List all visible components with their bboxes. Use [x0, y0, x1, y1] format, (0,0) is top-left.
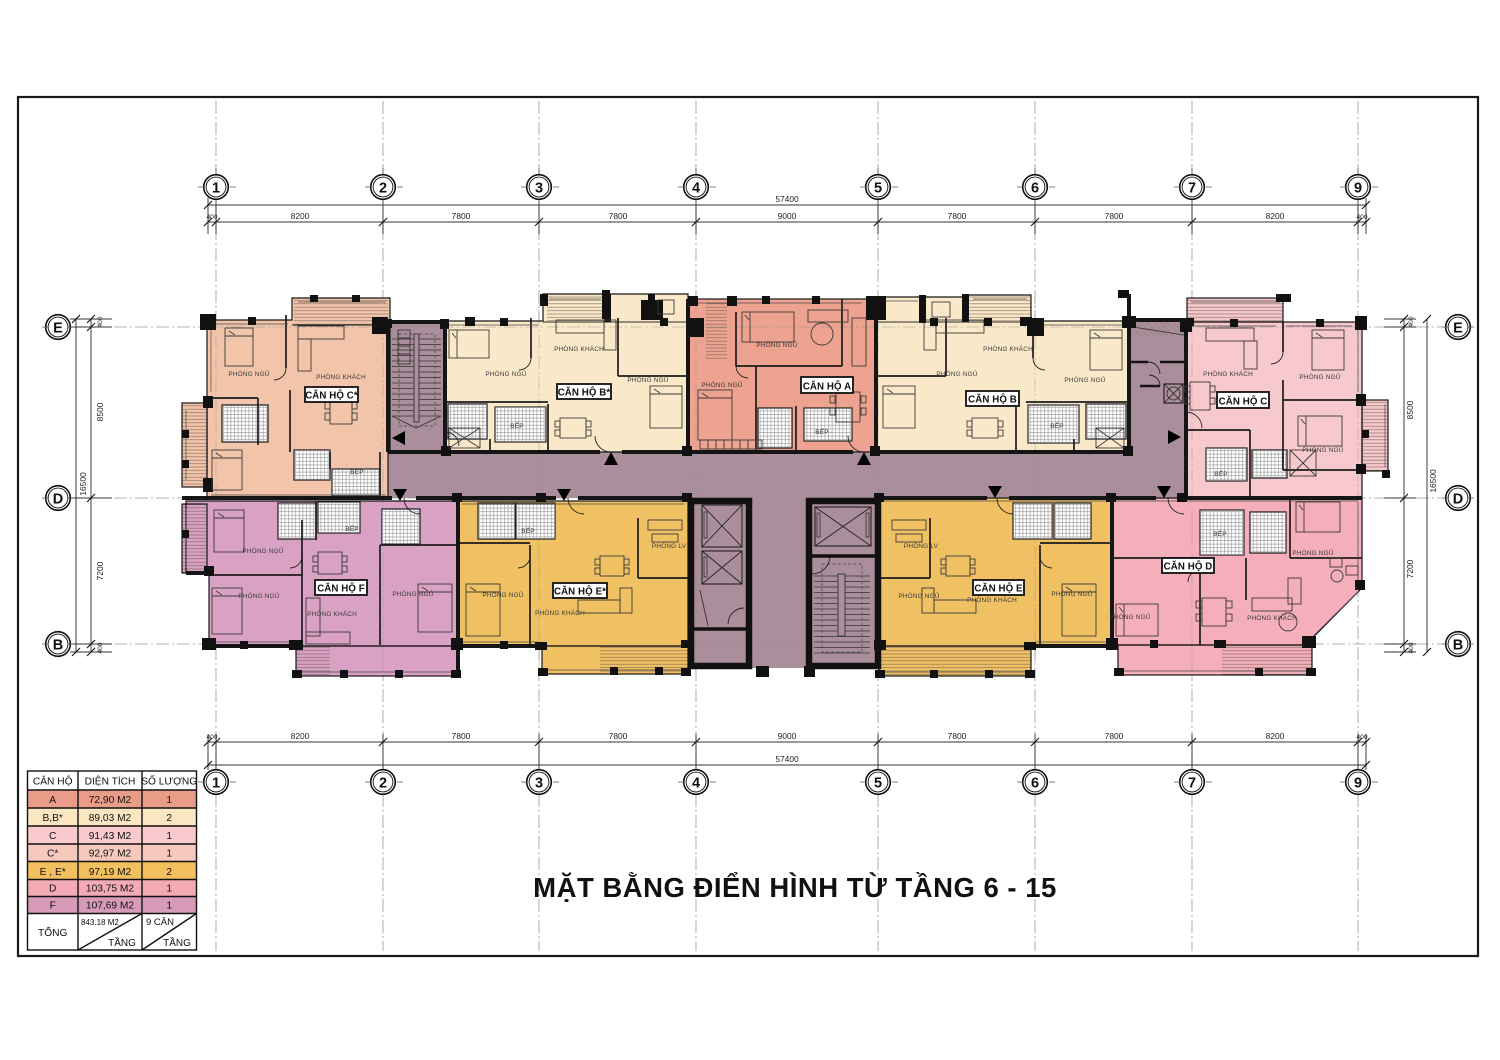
svg-text:DIỆN TÍCH: DIỆN TÍCH	[85, 775, 136, 788]
svg-text:PHÒNG KHÁCH: PHÒNG KHÁCH	[535, 608, 585, 617]
svg-text:400: 400	[97, 316, 104, 327]
svg-text:PHÒNG NGỦ: PHÒNG NGỦ	[482, 590, 523, 599]
svg-text:7: 7	[1188, 180, 1196, 196]
svg-text:CĂN HỘ E*: CĂN HỘ E*	[554, 586, 606, 598]
svg-text:C: C	[49, 831, 56, 842]
svg-text:2: 2	[166, 867, 172, 878]
svg-text:D: D	[1453, 491, 1463, 507]
svg-text:9000: 9000	[778, 731, 797, 741]
svg-text:9000: 9000	[778, 211, 797, 221]
svg-text:8200: 8200	[1266, 731, 1285, 741]
svg-text:PHÒNG KHÁCH: PHÒNG KHÁCH	[967, 595, 1017, 604]
svg-text:7800: 7800	[948, 731, 967, 741]
svg-text:97,19 M2: 97,19 M2	[89, 867, 132, 878]
svg-text:92,97 M2: 92,97 M2	[89, 849, 132, 860]
svg-text:B: B	[53, 637, 63, 653]
svg-text:400: 400	[1356, 734, 1367, 741]
svg-text:PHÒNG NGỦ: PHÒNG NGỦ	[701, 380, 742, 389]
svg-text:7800: 7800	[609, 731, 628, 741]
svg-text:SỐ LƯỢNG: SỐ LƯỢNG	[141, 774, 197, 788]
svg-text:16500: 16500	[1428, 469, 1438, 493]
svg-text:E: E	[53, 320, 63, 336]
svg-text:TẦNG: TẦNG	[108, 936, 136, 949]
svg-text:1: 1	[166, 884, 172, 895]
svg-text:400: 400	[1408, 642, 1415, 653]
svg-text:A: A	[49, 795, 56, 806]
svg-text:4: 4	[692, 775, 700, 791]
svg-text:91,43 M2: 91,43 M2	[89, 831, 132, 842]
svg-text:5: 5	[874, 180, 882, 196]
svg-text:PHÒNG LV: PHÒNG LV	[652, 541, 687, 550]
svg-text:PHÒNG NGỦ: PHÒNG NGỦ	[228, 369, 269, 378]
svg-text:103,75 M2: 103,75 M2	[86, 884, 134, 895]
svg-text:PHÒNG NGỦ: PHÒNG NGỦ	[898, 591, 939, 600]
svg-text:8200: 8200	[291, 211, 310, 221]
svg-text:400: 400	[97, 642, 104, 653]
svg-text:1: 1	[166, 831, 172, 842]
svg-text:1: 1	[166, 901, 172, 912]
svg-text:B,B*: B,B*	[43, 813, 63, 824]
svg-text:PHÒNG KHÁCH: PHÒNG KHÁCH	[1247, 613, 1297, 622]
svg-text:7200: 7200	[95, 561, 105, 580]
svg-text:2: 2	[166, 813, 172, 824]
svg-text:PHÒNG NGỦ: PHÒNG NGỦ	[1292, 548, 1333, 557]
svg-text:4: 4	[692, 180, 700, 196]
svg-text:PHÒNG NGỦ: PHÒNG NGỦ	[1109, 612, 1150, 621]
svg-text:7800: 7800	[1105, 211, 1124, 221]
svg-text:9: 9	[1354, 180, 1362, 196]
svg-text:PHÒNG NGỦ: PHÒNG NGỦ	[1051, 589, 1092, 598]
svg-text:8200: 8200	[1266, 211, 1285, 221]
svg-text:PHÒNG KHÁCH: PHÒNG KHÁCH	[307, 609, 357, 618]
svg-text:TẦNG: TẦNG	[163, 936, 191, 949]
svg-text:8500: 8500	[95, 402, 105, 421]
svg-text:400: 400	[206, 214, 217, 221]
svg-text:PHÒNG KHÁCH: PHÒNG KHÁCH	[554, 344, 604, 353]
svg-text:7: 7	[1188, 775, 1196, 791]
svg-text:PHÒNG NGỦ: PHÒNG NGỦ	[627, 375, 668, 384]
svg-text:7800: 7800	[948, 211, 967, 221]
svg-text:9 CĂN: 9 CĂN	[146, 917, 174, 928]
svg-text:8200: 8200	[291, 731, 310, 741]
svg-text:PHÒNG NGỦ: PHÒNG NGỦ	[485, 369, 526, 378]
svg-text:CĂN HỘ: CĂN HỘ	[33, 775, 73, 788]
svg-text:6: 6	[1031, 180, 1039, 196]
svg-text:1: 1	[212, 180, 220, 196]
svg-text:6: 6	[1031, 775, 1039, 791]
svg-text:CĂN HỘ F: CĂN HỘ F	[317, 583, 365, 595]
svg-text:PHÒNG KHÁCH: PHÒNG KHÁCH	[1203, 369, 1253, 378]
svg-text:57400: 57400	[775, 754, 799, 764]
svg-text:72,90 M2: 72,90 M2	[89, 795, 132, 806]
svg-text:PHÒNG NGỦ: PHÒNG NGỦ	[756, 340, 797, 349]
svg-text:CĂN HỘ C: CĂN HỘ C	[1219, 396, 1268, 408]
svg-text:2: 2	[379, 180, 387, 196]
svg-text:400: 400	[1408, 316, 1415, 327]
svg-text:843.18 M2: 843.18 M2	[81, 918, 119, 927]
svg-text:D: D	[53, 491, 63, 507]
svg-text:PHÒNG NGỦ: PHÒNG NGỦ	[242, 546, 283, 555]
svg-text:D: D	[49, 884, 56, 895]
svg-text:CĂN HỘ E: CĂN HỘ E	[974, 583, 1023, 595]
svg-text:3: 3	[535, 180, 543, 196]
svg-text:7800: 7800	[1105, 731, 1124, 741]
svg-text:1: 1	[166, 795, 172, 806]
svg-text:PHÒNG NGỦ: PHÒNG NGỦ	[1299, 372, 1340, 381]
svg-text:1: 1	[166, 849, 172, 860]
svg-text:5: 5	[874, 775, 882, 791]
svg-text:C*: C*	[47, 849, 58, 860]
svg-text:CĂN HỘ D: CĂN HỘ D	[1164, 561, 1213, 573]
svg-text:89,03 M2: 89,03 M2	[89, 813, 132, 824]
svg-text:7800: 7800	[609, 211, 628, 221]
svg-text:F: F	[50, 901, 56, 912]
svg-text:PHÒNG NGỦ: PHÒNG NGỦ	[1064, 375, 1105, 384]
svg-text:400: 400	[1356, 214, 1367, 221]
svg-text:7200: 7200	[1405, 559, 1415, 578]
svg-text:3: 3	[535, 775, 543, 791]
svg-text:8500: 8500	[1405, 400, 1415, 419]
svg-text:PHÒNG NGỦ: PHÒNG NGỦ	[238, 591, 279, 600]
svg-text:9: 9	[1354, 775, 1362, 791]
svg-text:B: B	[1453, 637, 1463, 653]
svg-text:E: E	[1453, 320, 1463, 336]
svg-text:CĂN HỘ B*: CĂN HỘ B*	[558, 387, 611, 399]
svg-text:CĂN HỘ C*: CĂN HỘ C*	[305, 390, 358, 402]
svg-text:7800: 7800	[452, 211, 471, 221]
svg-text:PHÒNG LV: PHÒNG LV	[904, 541, 939, 550]
svg-text:400: 400	[206, 734, 217, 741]
svg-text:57400: 57400	[775, 194, 799, 204]
svg-text:1: 1	[212, 775, 220, 791]
svg-text:MẶT BẰNG ĐIỂN HÌNH TỪ TẦNG 6 -: MẶT BẰNG ĐIỂN HÌNH TỪ TẦNG 6 - 15	[533, 872, 1057, 903]
svg-text:107,69 M2: 107,69 M2	[86, 901, 134, 912]
svg-text:PHÒNG NGỦ: PHÒNG NGỦ	[392, 589, 433, 598]
svg-text:PHÒNG NGỦ: PHÒNG NGỦ	[936, 369, 977, 378]
svg-text:CĂN HỘ A: CĂN HỘ A	[803, 381, 851, 393]
svg-text:PHÒNG NGỦ: PHÒNG NGỦ	[1302, 445, 1343, 454]
svg-text:TỔNG: TỔNG	[38, 926, 68, 939]
svg-text:PHÒNG KHÁCH: PHÒNG KHÁCH	[316, 372, 366, 381]
svg-text:16500: 16500	[78, 472, 88, 496]
svg-text:CĂN HỘ B: CĂN HỘ B	[968, 394, 1017, 406]
svg-text:PHÒNG KHÁCH: PHÒNG KHÁCH	[983, 344, 1033, 353]
svg-text:7800: 7800	[452, 731, 471, 741]
svg-text:2: 2	[379, 775, 387, 791]
svg-text:E , E*: E , E*	[40, 867, 66, 878]
